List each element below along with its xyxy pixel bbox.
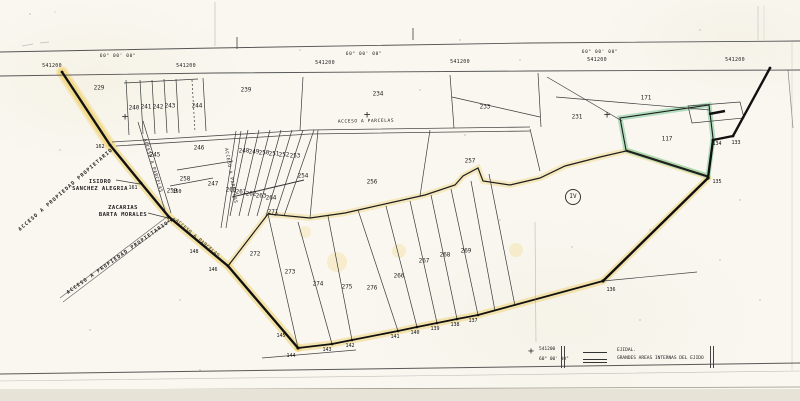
legend-grid-cross-icon: + <box>528 346 534 357</box>
legend-single-line-symbol <box>583 352 607 353</box>
green-highlighted-parcel <box>620 105 713 176</box>
legend-double-line-symbol <box>583 359 607 360</box>
parcel-lines-mid-left <box>60 121 241 302</box>
map-canvas <box>0 0 800 401</box>
parcel-lines-top-row <box>124 70 793 135</box>
paper-edge-shadow <box>0 389 800 401</box>
top-road-lines <box>0 28 800 76</box>
legend: + 541200 60° 00' 00" EJIDAL. GRANDES ARE… <box>520 342 730 374</box>
legend-divider-bar <box>561 346 562 368</box>
legend-station-value: 541200 <box>539 347 555 352</box>
legend-double-line-symbol <box>583 362 607 363</box>
legend-divider-bar <box>713 346 714 368</box>
legend-divider-bar <box>710 346 711 368</box>
yellow-highlight-strokes <box>62 72 708 348</box>
legend-item-label: EJIDAL. <box>617 348 636 353</box>
zone-roman-numeral-marker: IV <box>565 189 581 205</box>
legend-item-label: GRANDES AREAS INTERNAS DEL EJIDO <box>617 356 704 361</box>
middle-road-lines <box>112 127 530 146</box>
scanned-cadastral-map: 54120054120054120054120054120054120060° … <box>0 0 800 401</box>
legend-divider-bar <box>564 346 565 368</box>
